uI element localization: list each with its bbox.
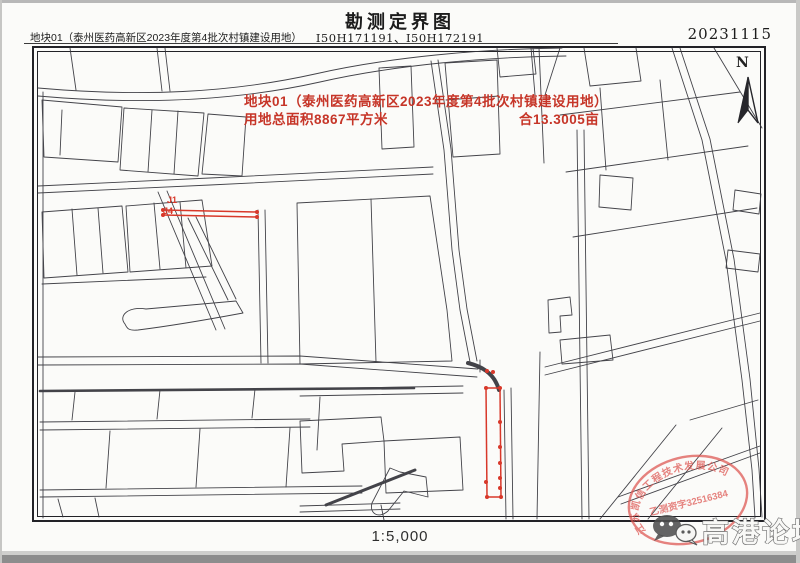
map-frame-outer (33, 47, 765, 521)
annotation-area: 用地总面积8867平方米 (244, 108, 388, 128)
annotation-area-mu: 合13.3005亩 (519, 108, 599, 128)
annotation-line1: 地块01（泰州医药高新区2023年度第4批次村镇建设用地） (244, 90, 608, 110)
label-j1: J1 (167, 195, 177, 205)
scanned-survey-page: 勘测定界图 地块01（泰州医药高新区2023年度第4批次村镇建设用地） I50H… (0, 0, 800, 563)
map-frame-inner (38, 52, 761, 517)
seal-code-text: 乙测资字32516384 (648, 487, 729, 518)
scale-label: 1:5,000 (0, 528, 800, 545)
north-label: N (736, 55, 749, 71)
survey-map: 江苏凯信工程技术发展公司 乙测资字32516384 高港论坛 (0, 0, 800, 563)
parcel-lines (38, 48, 762, 520)
label-j4: J4 (163, 206, 173, 216)
